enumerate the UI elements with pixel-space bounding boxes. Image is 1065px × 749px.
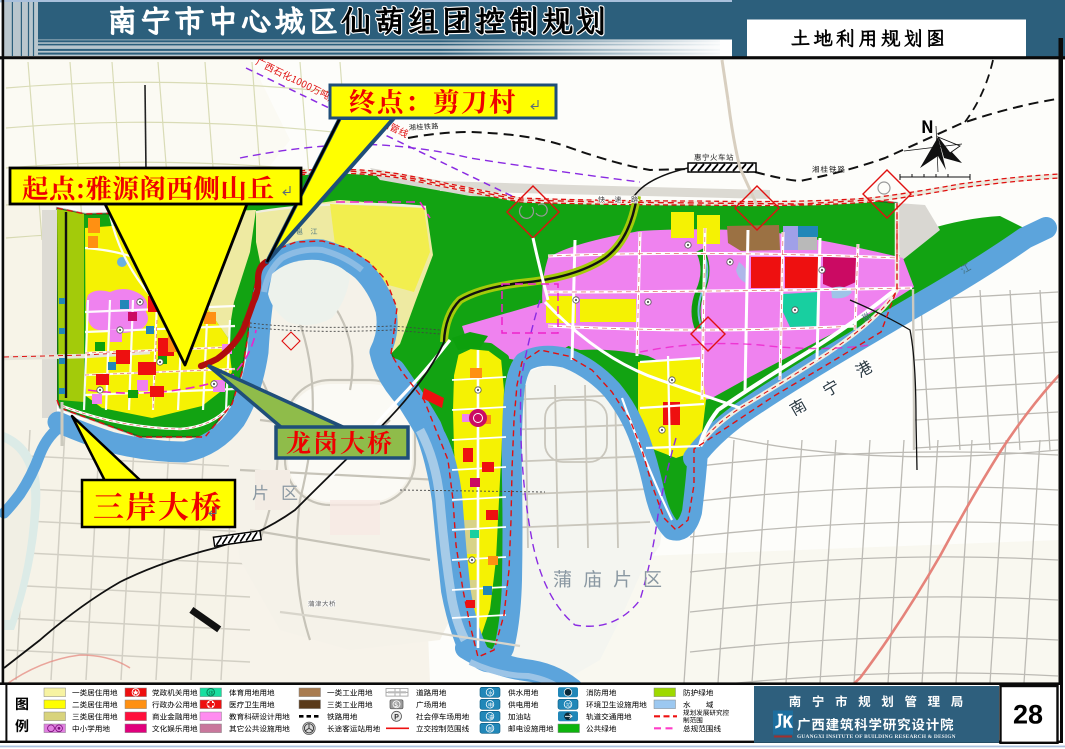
svg-text:28: 28 — [1013, 700, 1043, 730]
svg-text:GUANGXI INSITUTE OF BUILDING R: GUANGXI INSITUTE OF BUILDING RESEARCH & … — [797, 734, 956, 740]
